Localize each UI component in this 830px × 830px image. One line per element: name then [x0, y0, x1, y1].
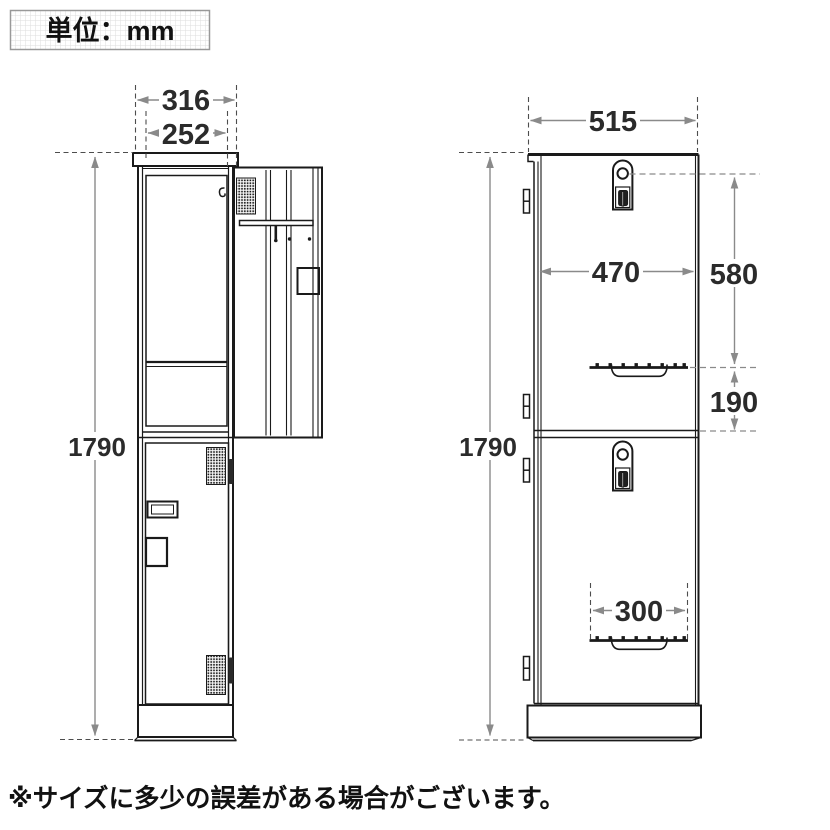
- vent-mesh-lower: [207, 656, 226, 695]
- dim-door-width: 252: [162, 119, 210, 151]
- lower-door-latch: [229, 459, 234, 484]
- page-background: [0, 0, 830, 830]
- dim-handle-width: 300: [615, 596, 663, 628]
- dim-inner-depth: 470: [592, 257, 640, 289]
- diagram-canvas: 単位：mm: [0, 0, 830, 830]
- vent-mesh-upper: [207, 448, 226, 485]
- lock-plate-lower: [613, 442, 632, 491]
- lower-door-hinge: [229, 658, 234, 684]
- dim-side-height: 1790: [459, 432, 517, 462]
- dim-upper-door-height: 580: [710, 259, 758, 291]
- door-vent-mesh: [237, 178, 256, 214]
- dim-handle-gap: 190: [710, 387, 758, 419]
- unit-label: 単位：mm: [45, 15, 174, 46]
- door-hanger-bar: [240, 221, 314, 226]
- locker-dimension-diagram: 単位：mm: [0, 0, 830, 830]
- size-disclaimer-note: ※サイズに多少の誤差がある場合がございます。: [8, 784, 565, 813]
- unit-label-box: 単位：mm: [11, 11, 210, 50]
- dim-outer-width: 316: [162, 85, 210, 117]
- lock-plate-upper: [613, 160, 632, 209]
- door-screw-dot: [288, 237, 291, 240]
- door-screw-dot: [308, 237, 311, 240]
- dim-front-height: 1790: [68, 432, 126, 462]
- dim-depth: 515: [589, 106, 637, 138]
